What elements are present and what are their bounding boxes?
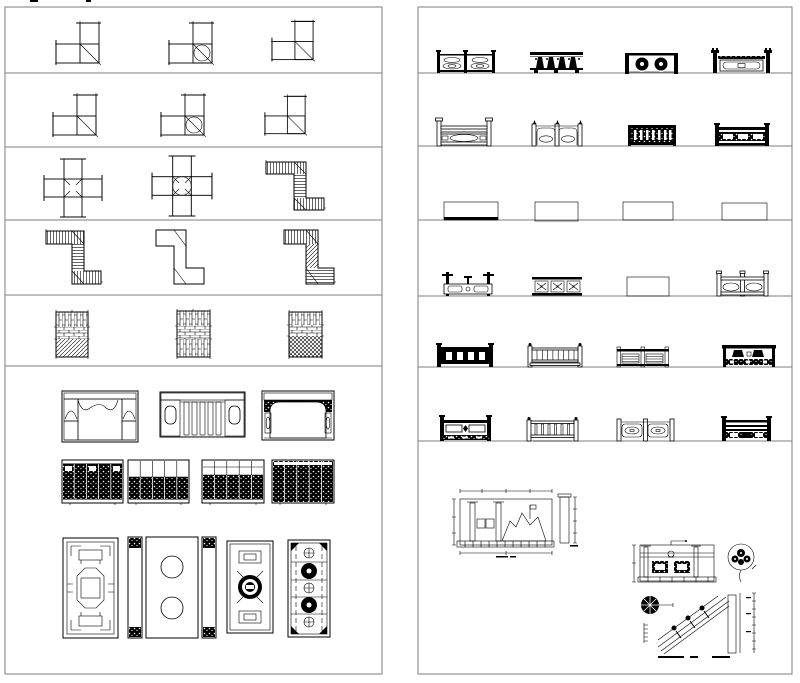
lattice-window-bead-column <box>288 540 330 637</box>
railing-vertical-bars <box>527 417 578 441</box>
railing-double-arch <box>532 120 582 146</box>
brick-wall-l-corner-a <box>55 21 101 65</box>
cad-catalog-sheet <box>0 0 800 683</box>
brick-wall-cross-junction-with-medallion <box>152 156 212 216</box>
detail-railing-with-rockery-elevation <box>452 489 578 558</box>
railing-dense-fret-c <box>623 202 673 220</box>
lattice-window-ice-crack-triptych <box>128 537 216 638</box>
brick-wall-l-corner-c <box>52 93 98 137</box>
railing-tall-posts-cartouche <box>711 48 772 73</box>
railing-dense-fret-a <box>444 202 498 220</box>
folding-screen-a <box>62 460 123 505</box>
brick-wall-l-corner-with-medallion-a <box>168 21 214 65</box>
brick-bond-panel-c <box>287 310 324 359</box>
folding-screen-c <box>202 460 264 505</box>
railing-floral-medallions <box>625 53 678 74</box>
left-sheet <box>5 7 382 674</box>
doorway-screen-curtain-arch <box>62 391 138 442</box>
railing-paneled-base <box>439 415 492 441</box>
brick-wall-l-corner-d <box>264 94 307 135</box>
railing-chain-ovals <box>436 50 496 73</box>
right-sheet <box>418 7 792 674</box>
brick-bond-panel-a <box>54 310 90 359</box>
detail-stair-railing-section <box>632 540 756 658</box>
railing-wing-posts-openwork <box>442 272 494 296</box>
lattice-window-coin-medallion <box>227 541 273 633</box>
brick-wall-z-corner-dark <box>156 230 204 284</box>
railing-trapezoid-panel <box>722 345 776 367</box>
lattice-window-octagon <box>63 538 118 638</box>
brick-bond-panel-b <box>175 309 212 359</box>
brick-wall-l-corner-b <box>271 19 315 61</box>
folding-screen-d <box>272 460 334 505</box>
railing-dense-fret-b <box>535 202 578 221</box>
railing-spindles-dark <box>628 125 676 146</box>
brick-wall-l-corner-with-medallion-b <box>160 93 206 137</box>
drawing-canvas <box>0 0 800 683</box>
railing-dark-star-panels <box>627 277 669 296</box>
railing-bridge-oval <box>436 118 493 146</box>
railing-arch-balusters <box>530 52 583 73</box>
railing-cross-motifs <box>532 277 582 296</box>
brick-wall-z-corner-a <box>266 160 326 210</box>
doorway-screen-wide-arch <box>262 391 334 440</box>
railing-wide-balusters <box>436 343 494 367</box>
railing-double-cartouche <box>617 419 674 441</box>
railing-two-bay-slats <box>617 347 669 367</box>
railing-stacked-rails <box>721 416 772 441</box>
cropped-marks <box>30 0 91 2</box>
folding-screen-b <box>128 460 189 505</box>
railing-two-oval-bays <box>717 271 769 296</box>
doorway-screen-gate <box>160 392 245 437</box>
brick-wall-z-corner-c <box>284 230 336 284</box>
railing-dense-bars <box>722 203 767 220</box>
railing-thin-spindles <box>528 343 582 367</box>
brick-wall-cross-junction <box>44 159 102 217</box>
brick-wall-z-corner-b <box>46 229 103 284</box>
railing-three-panel <box>714 123 770 146</box>
